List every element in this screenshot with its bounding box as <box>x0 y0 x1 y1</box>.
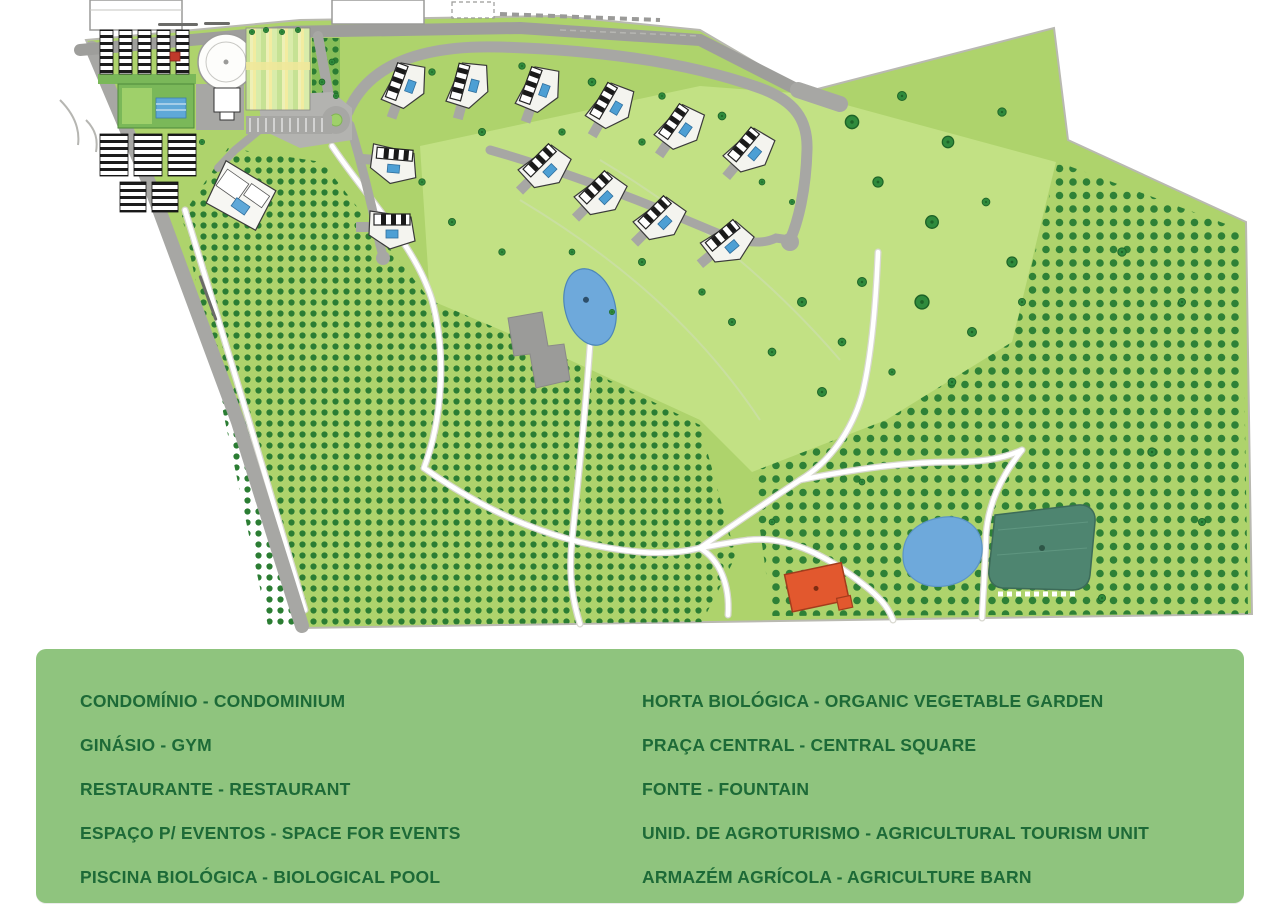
rowhouse-block <box>100 30 189 74</box>
parking-strip <box>246 116 332 134</box>
striped-crop-field <box>246 27 310 110</box>
site-plan-svg <box>0 0 1280 648</box>
legend-item-ginasio: GINÁSIO - GYM <box>80 723 642 767</box>
legend-item-espaco-eventos: ESPAÇO P/ EVENTOS - SPACE FOR EVENTS <box>80 811 642 855</box>
legend-item-armazem-agricola: ARMAZÉM AGRÍCOLA - AGRICULTURE BARN <box>642 855 1224 899</box>
sports-courts <box>118 84 194 128</box>
legend-item-fonte: FONTE - FOUNTAIN <box>642 767 1224 811</box>
legend-column-left: CONDOMÍNIO - CONDOMINIUM GINÁSIO - GYM R… <box>80 679 642 899</box>
small-pool <box>156 98 186 118</box>
cul-de-sac <box>376 251 390 265</box>
legend-item-horta-biologica: HORTA BIOLÓGICA - ORGANIC VEGETABLE GARD… <box>642 679 1224 723</box>
legend-item-praca-central: PRAÇA CENTRAL - CENTRAL SQUARE <box>642 723 1224 767</box>
reservoir-teal <box>989 505 1095 594</box>
legend-panel: CONDOMÍNIO - CONDOMINIUM GINÁSIO - GYM R… <box>36 649 1244 903</box>
red-marker <box>170 52 180 61</box>
legend-item-piscina-biologica: PISCINA BIOLÓGICA - BIOLOGICAL POOL <box>80 855 642 899</box>
legend-item-condominio: CONDOMÍNIO - CONDOMINIUM <box>80 679 642 723</box>
legend-column-right: HORTA BIOLÓGICA - ORGANIC VEGETABLE GARD… <box>642 679 1224 899</box>
rowhouse-block <box>100 134 196 176</box>
site-plan-map <box>0 0 1280 648</box>
legend-item-agroturismo: UNID. DE AGROTURISMO - AGRICULTURAL TOUR… <box>642 811 1224 855</box>
legend-item-restaurante: RESTAURANTE - RESTAURANT <box>80 767 642 811</box>
cul-de-sac <box>781 233 799 251</box>
